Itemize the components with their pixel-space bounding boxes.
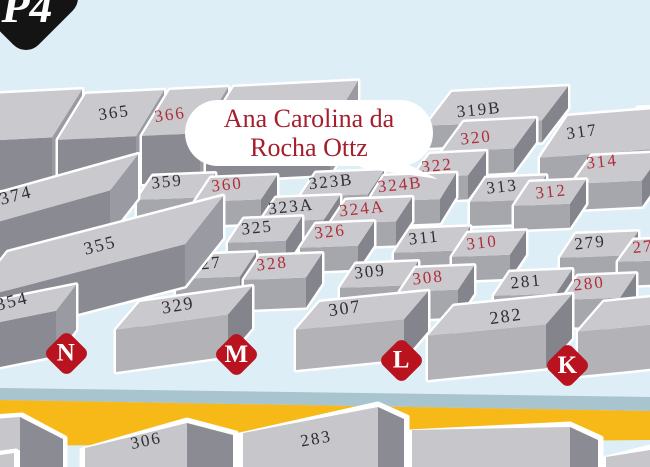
stall-label-312: 312 bbox=[534, 180, 567, 202]
stall-label-328: 328 bbox=[255, 252, 288, 274]
marker-m-label: M bbox=[225, 340, 249, 368]
tooltip-bubble: Ana Carolina da Rocha Ottz bbox=[185, 100, 433, 166]
parking-map: 365366319B3320317322314359360323B324B313… bbox=[0, 0, 650, 467]
stall-label-325: 325 bbox=[240, 216, 273, 238]
stall-label-313: 313 bbox=[485, 175, 518, 197]
block-top bbox=[412, 427, 570, 467]
parking-level-badge-label: P4 bbox=[0, 0, 58, 33]
stall-label-309: 309 bbox=[353, 260, 386, 282]
stall-label-279: 279 bbox=[573, 231, 606, 253]
marker-k-label: K bbox=[558, 351, 577, 379]
map-canvas: 365366319B3320317322314359360323B324B313… bbox=[0, 0, 650, 467]
stall-label-359: 359 bbox=[150, 170, 183, 192]
marker-n-label: N bbox=[57, 340, 75, 368]
stall-label-314: 314 bbox=[585, 150, 618, 172]
block-top bbox=[0, 417, 20, 454]
block-front-face bbox=[578, 323, 650, 376]
tooltip-name-line2: Rocha Ottz bbox=[185, 133, 433, 162]
block-front-face bbox=[514, 204, 570, 230]
stall-label-308: 308 bbox=[411, 266, 444, 288]
stall-label-326: 326 bbox=[313, 220, 346, 242]
stall-label-310: 310 bbox=[465, 231, 498, 253]
stall-label-280: 280 bbox=[572, 272, 605, 294]
block-top bbox=[0, 453, 14, 467]
stall-label-281: 281 bbox=[509, 270, 542, 292]
tooltip-name-line1: Ana Carolina da bbox=[185, 104, 433, 133]
stall-label-27: 27 bbox=[632, 236, 650, 257]
stall-label-311: 311 bbox=[408, 226, 441, 248]
stall-label-320: 320 bbox=[459, 126, 492, 148]
marker-l-label: L bbox=[393, 347, 410, 375]
stall-label-360: 360 bbox=[210, 173, 243, 195]
